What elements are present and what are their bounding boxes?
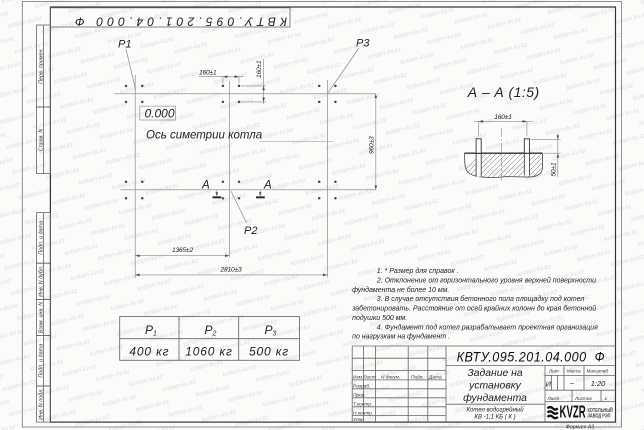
svg-text:2. Отклонение от горизонтальн: 2. Отклонение от горизонтального уровня … xyxy=(376,276,596,284)
svg-text:1060 кг: 1060 кг xyxy=(185,345,233,359)
svg-text:фундамента не более 10 мм.: фундамента не более 10 мм. xyxy=(352,286,449,294)
svg-text:Лит: Лит xyxy=(548,368,559,373)
svg-text:Т.контр.: Т.контр. xyxy=(353,402,372,408)
svg-text:КВ -1,1 КБ ( К ): КВ -1,1 КБ ( К ) xyxy=(474,415,515,421)
svg-text:A: A xyxy=(201,180,210,192)
svg-text:1:20: 1:20 xyxy=(591,379,606,388)
svg-text:Лист: Лист xyxy=(547,396,560,401)
svg-text:Справ. N: Справ. N xyxy=(38,129,44,152)
svg-text:0.000: 0.000 xyxy=(145,107,175,121)
svg-text:Масштаб: Масштаб xyxy=(587,368,609,373)
svg-text:Ось симетрии котла: Ось симетрии котла xyxy=(146,129,262,141)
svg-text:160±1: 160±1 xyxy=(199,69,217,76)
svg-text:Подп. и дата: Подп. и дата xyxy=(38,221,44,255)
svg-text:Инв. N подл.: Инв. N подл. xyxy=(38,388,44,420)
svg-text:1365±2: 1365±2 xyxy=(172,247,194,254)
svg-text:Подп.: Подп. xyxy=(411,375,424,381)
svg-text:И: И xyxy=(546,379,552,388)
svg-text:A: A xyxy=(263,180,272,192)
svg-text:Подп. и дата: Подп. и дата xyxy=(38,344,44,378)
svg-text:Задание на: Задание на xyxy=(467,368,523,379)
svg-text:Пров.: Пров. xyxy=(353,393,366,399)
svg-text:установку: установку xyxy=(468,380,522,391)
svg-text:160±1: 160±1 xyxy=(256,60,263,78)
svg-text:1. * Размер для справок .: 1. * Размер для справок . xyxy=(377,267,459,275)
svg-text:1: 1 xyxy=(605,396,608,401)
svg-text:Дата: Дата xyxy=(428,375,442,381)
svg-text:Инв. N дубл.: Инв. N дубл. xyxy=(38,266,44,297)
svg-text:Утв.: Утв. xyxy=(353,417,364,423)
svg-text:Взам. инв. N: Взам. инв. N xyxy=(38,302,44,334)
svg-text:N докум.: N докум. xyxy=(381,375,400,381)
svg-text:500 кг: 500 кг xyxy=(249,345,289,359)
svg-text:Перв. примен.: Перв. примен. xyxy=(38,48,44,84)
svg-text:P3: P3 xyxy=(356,38,370,50)
svg-text:Формат А3: Формат А3 xyxy=(566,424,594,430)
svg-text:Котел водогрейный: Котел водогрейный xyxy=(466,407,524,414)
svg-text:3. В случае отсутствия бетонн: 3. В случае отсутствия бетонного пола пл… xyxy=(377,295,585,303)
svg-text:960±3: 960±3 xyxy=(368,136,375,154)
svg-text:P1: P1 xyxy=(118,39,131,51)
svg-text:160±1: 160±1 xyxy=(494,114,512,121)
svg-text:по нагрузкам на фундамент .: по нагрузкам на фундамент . xyxy=(352,333,450,341)
svg-text:P2: P2 xyxy=(244,225,257,237)
svg-text:подушки 500 мм.: подушки 500 мм. xyxy=(352,314,407,322)
svg-text:КВТУ.095.201.04.000 Ф: КВТУ.095.201.04.000 Ф xyxy=(71,14,287,28)
svg-text:фундамента: фундамента xyxy=(463,392,527,404)
svg-text:КВТУ.095.201.04.000 Ф: КВТУ.095.201.04.000 Ф xyxy=(457,349,606,365)
svg-text:4. Фундамент под котел разраб: 4. Фундамент под котел разрабатывает про… xyxy=(377,323,598,331)
svg-text:ЗАВОД РЭП: ЗАВОД РЭП xyxy=(588,413,611,419)
svg-text:–: – xyxy=(569,378,575,387)
svg-text:Разраб.: Разраб. xyxy=(353,384,370,390)
svg-text:2810±3: 2810±3 xyxy=(219,267,242,274)
svg-text:50±1: 50±1 xyxy=(550,162,557,177)
svg-text:KVZR: KVZR xyxy=(560,401,586,421)
svg-text:забетонировать. Расстояние от: забетонировать. Расстояние от осей крайн… xyxy=(351,305,596,313)
svg-text:А – А (1:5): А – А (1:5) xyxy=(467,84,540,100)
svg-text:Изм.Лист: Изм.Лист xyxy=(353,375,376,381)
svg-text:400 кг: 400 кг xyxy=(129,345,169,359)
svg-text:Масса: Масса xyxy=(567,368,581,373)
svg-text:Н.контр.: Н.контр. xyxy=(353,410,373,416)
